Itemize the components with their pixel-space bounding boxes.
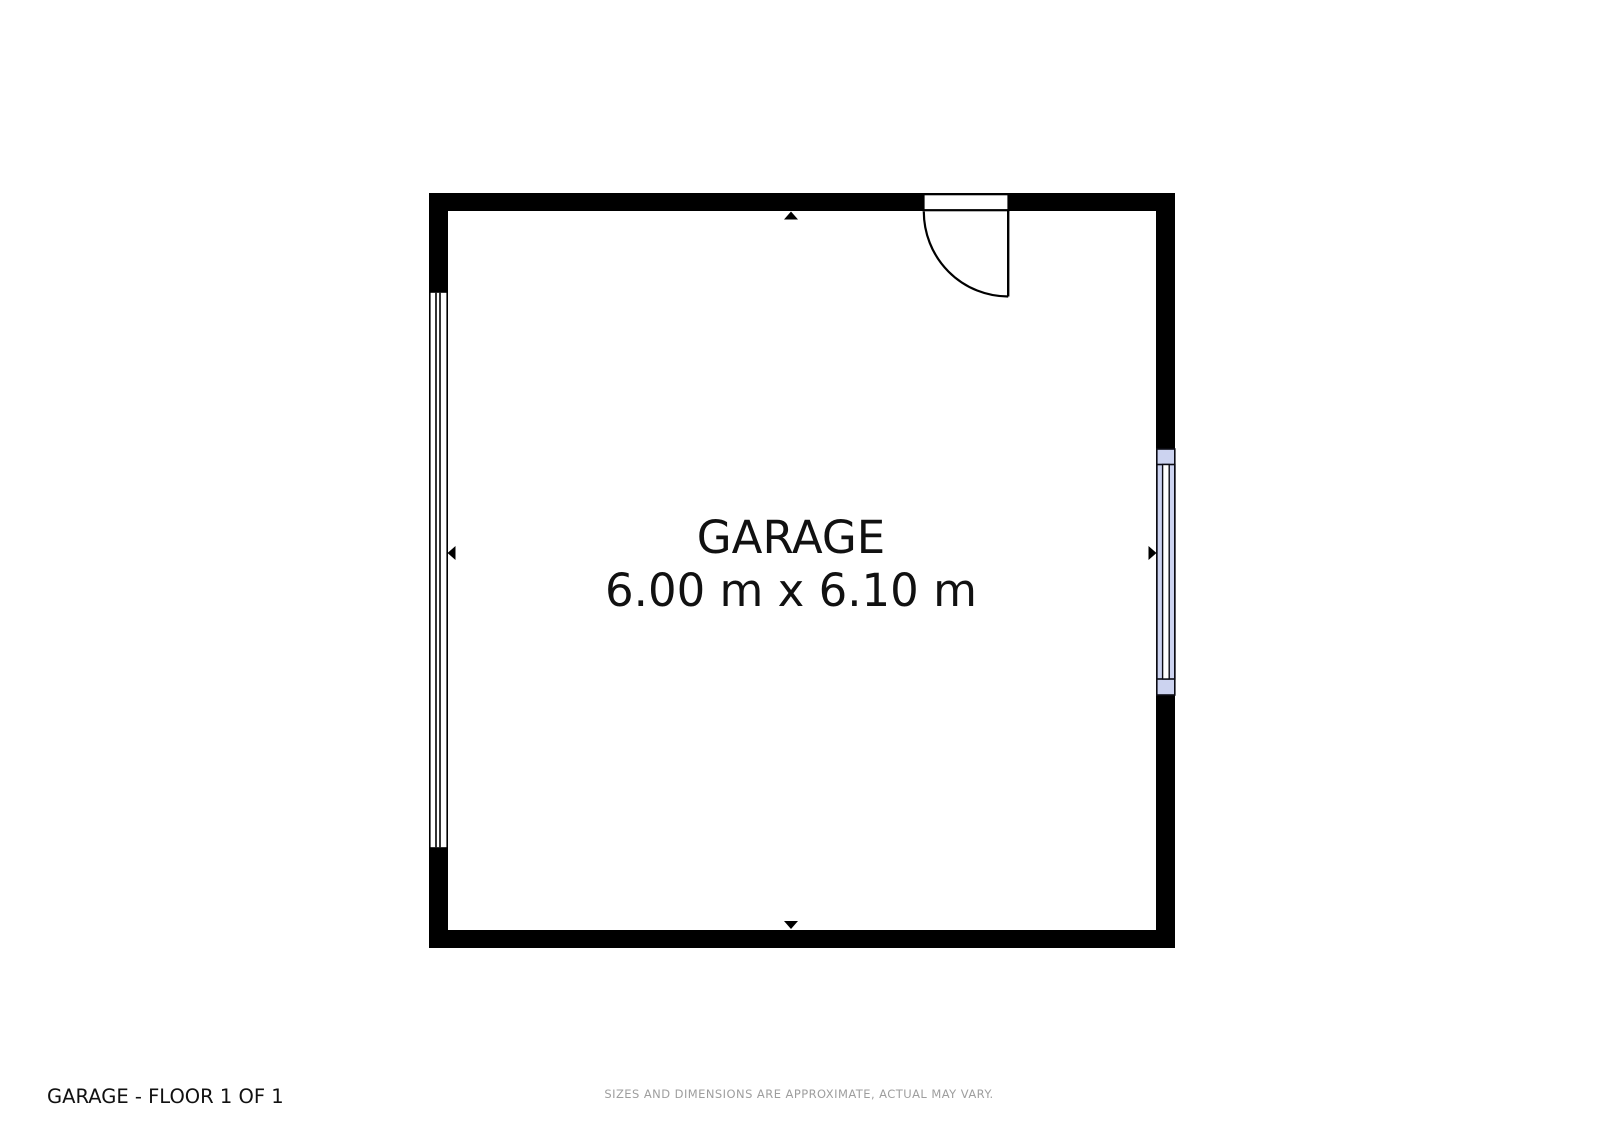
room-dimensions: 6.00 m x 6.10 m bbox=[605, 565, 977, 618]
wall-top bbox=[429, 193, 1175, 211]
wall-bottom bbox=[429, 930, 1175, 948]
room-name: GARAGE bbox=[605, 512, 977, 565]
arrow-right-icon bbox=[1149, 546, 1157, 560]
floorplan-page: GARAGE 6.00 m x 6.10 m GARAGE - FLOOR 1 … bbox=[0, 0, 1600, 1131]
room-label: GARAGE 6.00 m x 6.10 m bbox=[605, 512, 977, 617]
door bbox=[924, 194, 1009, 296]
floor-title: GARAGE - FLOOR 1 OF 1 bbox=[47, 1085, 284, 1108]
left-window bbox=[430, 292, 447, 848]
doorway-opening bbox=[924, 194, 1009, 210]
arrow-down-icon bbox=[784, 921, 798, 929]
left-window-frame bbox=[430, 292, 447, 848]
door-swing-arc bbox=[924, 212, 1008, 297]
disclaimer-text: SIZES AND DIMENSIONS ARE APPROXIMATE, AC… bbox=[604, 1087, 993, 1101]
right-window bbox=[1157, 449, 1175, 695]
arrow-left-icon bbox=[448, 546, 456, 560]
right-window-pane bbox=[1163, 465, 1170, 680]
arrow-up-icon bbox=[784, 212, 798, 220]
